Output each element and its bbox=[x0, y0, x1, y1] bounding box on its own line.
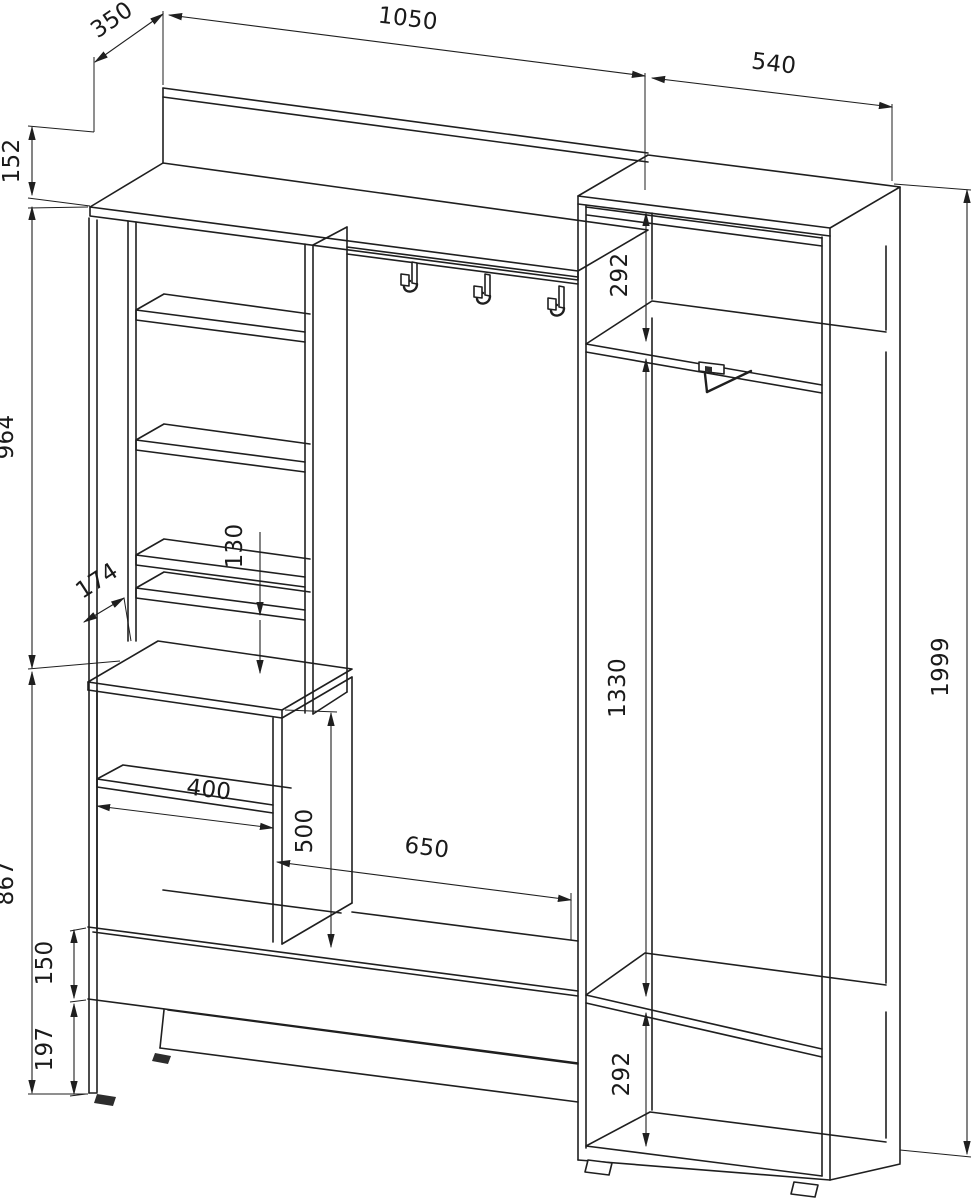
dim-label-964: 964 bbox=[0, 415, 19, 460]
hanger-rail-bracket bbox=[699, 362, 751, 392]
back-rail-panel bbox=[163, 88, 648, 163]
dim-label-540: 540 bbox=[750, 48, 798, 79]
dim-wardrobe-width: 540 bbox=[652, 48, 892, 181]
dim-back-rail-height: 152 bbox=[0, 126, 94, 206]
dim-shelf-column-height: 964 bbox=[0, 207, 120, 669]
dim-label-152: 152 bbox=[0, 139, 25, 184]
dim-wardrobe-bottom-shelf-space: 292 bbox=[609, 1013, 646, 1146]
dim-bench-apron-height: 150 bbox=[32, 928, 86, 1002]
bench bbox=[88, 912, 578, 1102]
dim-label-197: 197 bbox=[32, 1027, 58, 1072]
coat-hook-icon bbox=[401, 262, 417, 292]
cabinet-foot bbox=[585, 1160, 612, 1175]
top-shelf bbox=[90, 163, 648, 280]
dim-label-1330: 1330 bbox=[605, 658, 631, 718]
dim-top-shelf-depth: 350 bbox=[86, 0, 163, 132]
wardrobe-dimension-drawing: 350 1050 540 1999 152 964 867 174 bbox=[0, 0, 973, 1200]
dim-label-292-top: 292 bbox=[607, 253, 633, 298]
dim-shelf-column-depth: 174 bbox=[71, 558, 131, 641]
column-bottom-panel bbox=[136, 572, 310, 620]
dim-label-500: 500 bbox=[292, 809, 318, 854]
back-foot bbox=[152, 1053, 171, 1064]
dim-label-130: 130 bbox=[222, 524, 248, 569]
dim-label-150: 150 bbox=[32, 941, 58, 986]
technical-drawing-page: 350 1050 540 1999 152 964 867 174 bbox=[0, 0, 973, 1200]
dim-wardrobe-hanging-space: 1330 bbox=[605, 359, 646, 996]
dim-bench-floor-clearance: 197 bbox=[32, 1004, 86, 1096]
coat-hook-icon bbox=[474, 274, 490, 304]
dim-wardrobe-top-shelf-space: 292 bbox=[607, 213, 646, 341]
cabinet-foot bbox=[791, 1182, 818, 1197]
coat-hooks bbox=[401, 262, 564, 316]
dim-label-650: 650 bbox=[403, 832, 451, 863]
dim-wardrobe-total-height: 1999 bbox=[894, 184, 971, 1157]
front-foot bbox=[94, 1094, 116, 1106]
dim-label-867: 867 bbox=[0, 861, 19, 906]
wardrobe-bottom-shelf bbox=[586, 953, 886, 1057]
coat-hook-icon bbox=[548, 286, 564, 316]
bench-back-panel bbox=[160, 1010, 578, 1102]
dim-bench-opening-width: 650 bbox=[277, 832, 571, 940]
dim-label-1999: 1999 bbox=[928, 637, 954, 697]
dim-left-section-width: 1050 bbox=[169, 3, 645, 190]
dim-label-292-bottom: 292 bbox=[609, 1052, 635, 1097]
wardrobe-floor-panel bbox=[586, 1112, 886, 1176]
column-shelf-2 bbox=[136, 424, 310, 472]
dim-label-1050: 1050 bbox=[377, 3, 439, 36]
shelf-column bbox=[128, 221, 347, 714]
left-side-panel bbox=[89, 218, 171, 1106]
column-shelf-1 bbox=[136, 294, 310, 342]
dim-label-400: 400 bbox=[185, 774, 233, 805]
